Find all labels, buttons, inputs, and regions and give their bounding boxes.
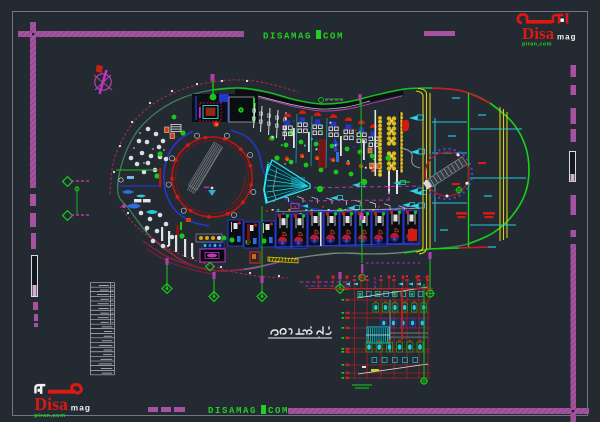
svg-text:Disa: Disa (522, 24, 555, 43)
svg-text:Disa: Disa (34, 394, 68, 414)
svg-text:COM: COM (268, 406, 289, 416)
svg-text:COM: COM (323, 32, 344, 42)
svg-text:mag: mag (71, 403, 91, 413)
svg-text:piran,com: piran,com (34, 413, 65, 419)
svg-text:DISAMAG: DISAMAG (208, 406, 257, 416)
svg-text:mag: mag (557, 33, 576, 42)
svg-text:piran,com: piran,com (522, 42, 552, 48)
svg-text:DISAMAG: DISAMAG (263, 32, 312, 42)
